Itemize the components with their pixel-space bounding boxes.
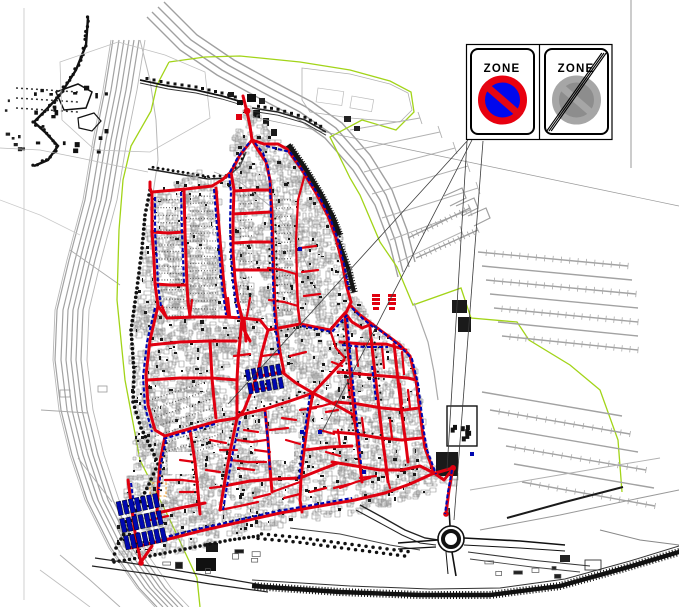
svg-text:ZONE: ZONE [484,63,521,75]
svg-text:ZONE: ZONE [558,63,595,75]
